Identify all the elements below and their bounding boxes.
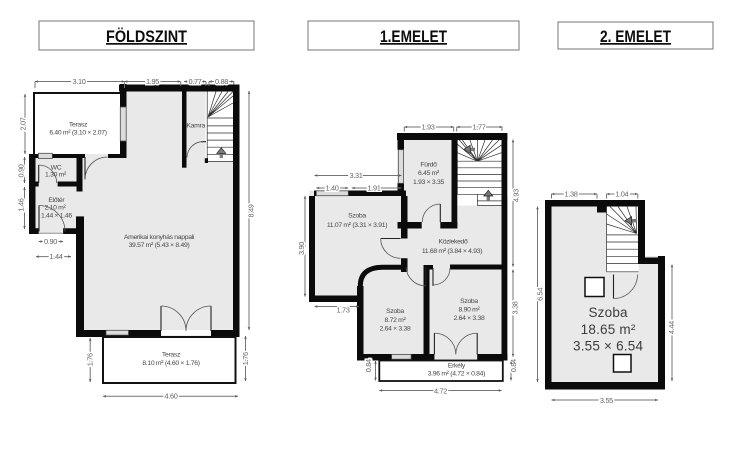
svg-text:0.84: 0.84: [364, 359, 373, 372]
svg-text:Fürdő: Fürdő: [420, 162, 437, 169]
svg-text:6.40 m² (3.10 × 2.07): 6.40 m² (3.10 × 2.07): [49, 130, 106, 137]
svg-text:0.90: 0.90: [17, 164, 26, 177]
svg-text:2.64 × 3.38: 2.64 × 3.38: [380, 326, 411, 333]
svg-text:Előtér: Előtér: [48, 197, 65, 204]
svg-text:Amerikai konyhás nappali: Amerikai konyhás nappali: [124, 234, 195, 241]
svg-text:Terasz: Terasz: [162, 352, 181, 359]
svg-text:Erkély: Erkély: [448, 362, 466, 369]
svg-text:0.88: 0.88: [215, 77, 228, 86]
svg-text:Szoba: Szoba: [348, 213, 366, 220]
svg-text:4.72: 4.72: [434, 387, 447, 396]
svg-text:1.44: 1.44: [50, 252, 63, 261]
svg-text:8.49: 8.49: [247, 204, 256, 217]
svg-text:1.46: 1.46: [17, 198, 26, 211]
svg-text:Szoba: Szoba: [386, 308, 404, 315]
svg-text:Közlekedő: Közlekedő: [438, 239, 468, 246]
svg-text:Szoba: Szoba: [460, 298, 478, 305]
svg-text:4.44: 4.44: [667, 321, 676, 334]
svg-text:11.07 m² (3.31 × 3.91): 11.07 m² (3.31 × 3.91): [327, 222, 387, 229]
svg-text:1.95: 1.95: [146, 77, 159, 86]
svg-text:8.10 m² (4.60 × 1.76): 8.10 m² (4.60 × 1.76): [142, 360, 199, 367]
svg-text:1.91: 1.91: [368, 184, 381, 193]
svg-text:4.60: 4.60: [165, 392, 178, 401]
svg-text:1.40: 1.40: [326, 184, 339, 193]
svg-text:Szoba: Szoba: [588, 305, 628, 320]
svg-text:1.93: 1.93: [422, 123, 435, 132]
svg-text:4.93: 4.93: [512, 189, 521, 202]
svg-text:11.68 m² (3.84 × 4.93): 11.68 m² (3.84 × 4.93): [422, 248, 482, 255]
svg-text:1.04: 1.04: [615, 190, 628, 199]
svg-text:0.84: 0.84: [509, 359, 518, 372]
svg-text:3.10: 3.10: [73, 77, 86, 86]
svg-text:39.57 m² (5.43 × 8.49): 39.57 m² (5.43 × 8.49): [129, 242, 190, 249]
svg-text:2.64 × 3.38: 2.64 × 3.38: [454, 315, 485, 322]
svg-text:8.72 m²: 8.72 m²: [385, 317, 407, 324]
svg-text:2.10 m²: 2.10 m²: [45, 204, 67, 211]
svg-text:6.54: 6.54: [535, 288, 544, 301]
svg-text:1.EMELET: 1.EMELET: [380, 27, 447, 46]
svg-text:1.93 × 3.35: 1.93 × 3.35: [413, 179, 444, 186]
svg-text:3.55: 3.55: [600, 396, 613, 405]
svg-text:3.38: 3.38: [511, 301, 520, 314]
svg-text:1.77: 1.77: [473, 123, 486, 132]
svg-text:0.90: 0.90: [44, 237, 57, 246]
svg-text:1.44 × 1.46: 1.44 × 1.46: [41, 213, 72, 220]
svg-text:1.76: 1.76: [241, 352, 250, 365]
svg-text:1.38: 1.38: [565, 190, 578, 199]
svg-text:3.96 m² (4.72 × 0.84): 3.96 m² (4.72 × 0.84): [428, 371, 485, 378]
svg-text:0.77: 0.77: [189, 77, 202, 86]
svg-text:8.90 m²: 8.90 m²: [459, 307, 481, 314]
svg-text:Terasz: Terasz: [69, 121, 88, 128]
svg-text:18.65 m²: 18.65 m²: [581, 322, 636, 337]
svg-text:2. EMELET: 2. EMELET: [600, 27, 671, 46]
svg-text:6.45 m²: 6.45 m²: [418, 170, 440, 177]
svg-text:Kamra: Kamra: [186, 123, 205, 130]
svg-text:3.55 × 6.54: 3.55 × 6.54: [573, 338, 643, 353]
svg-text:1.30 m²: 1.30 m²: [45, 171, 67, 178]
svg-text:1.76: 1.76: [85, 353, 94, 366]
svg-text:3.31: 3.31: [350, 171, 363, 180]
svg-text:2.07: 2.07: [19, 117, 28, 130]
svg-text:3.90: 3.90: [297, 242, 306, 255]
svg-text:1.73: 1.73: [337, 306, 350, 315]
svg-text:FÖLDSZINT: FÖLDSZINT: [106, 27, 188, 46]
